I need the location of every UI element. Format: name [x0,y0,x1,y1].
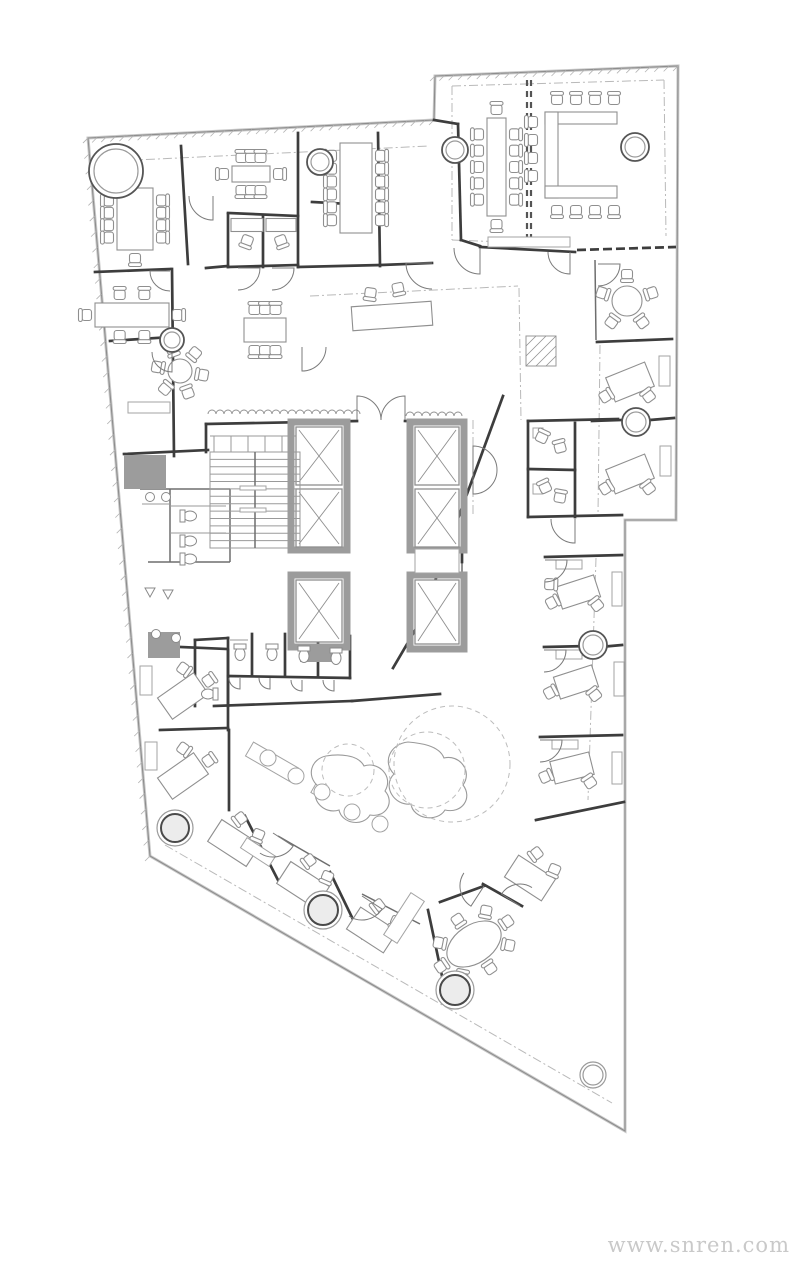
chair-seat [274,169,284,180]
column-inner [311,153,329,171]
desk [536,752,600,801]
wall [597,339,672,342]
door-swing [381,396,405,420]
chair-back [608,215,621,219]
chair-back [324,188,328,201]
desk [266,219,296,251]
column-inner [625,137,645,157]
chair-seat [130,254,141,264]
chair-seat [376,215,386,226]
chair-seat [255,153,266,163]
chair [230,810,248,828]
wall [124,450,208,454]
chair-back [519,193,523,206]
wall [298,265,380,267]
chair [324,188,337,201]
floor-plan-drawing [0,0,800,1261]
wall [180,647,227,649]
chair-seat [474,145,484,156]
chair [179,383,196,400]
chair-back [324,201,328,214]
wall [480,247,575,252]
column [89,144,143,198]
side-table [614,662,624,696]
door-swing [357,396,381,420]
chair-seat [510,178,520,189]
wall [352,694,440,701]
wall [540,735,622,737]
chair [553,488,568,503]
chair [113,331,126,344]
chair-back [138,340,151,344]
chair [589,206,602,219]
chair-seat [82,310,92,321]
toilet-fixture [298,646,310,663]
chair [101,219,114,232]
lounge-stool [372,816,388,832]
table-top [612,286,642,316]
side-table [488,237,570,247]
side-table [660,446,671,476]
chair [376,162,389,175]
chair-back [589,92,602,96]
wall-poche [124,455,166,489]
column-inner [164,332,180,348]
elevator-shaft [415,427,459,485]
wall [545,555,622,557]
door-swing [291,680,302,691]
chair [471,128,484,141]
table-top [95,303,169,327]
stair-rail [240,508,266,512]
chair-seat [510,129,520,140]
chair [185,345,203,363]
chair-back [385,201,389,214]
toilet-tank [180,553,185,565]
chair-back [385,175,389,188]
elevator-shaft [296,489,342,547]
chair [324,175,337,188]
chair-back [519,144,523,157]
chair-seat [474,194,484,205]
side-table [556,650,582,659]
chair-back [471,144,475,157]
chair [254,186,267,199]
chair [525,116,538,129]
chair [157,194,170,207]
lounge-circle-6 [151,342,209,400]
chair [101,231,114,244]
column-inner [626,412,646,432]
wall [214,701,352,706]
chair-back [525,134,529,147]
chair [551,206,564,219]
column-inner [94,149,138,193]
chair [643,285,659,301]
column-inner [583,1065,603,1085]
door-swing [272,268,294,290]
urinal [145,588,155,597]
chair-seat [139,290,150,300]
chair [490,102,503,115]
chair [570,92,583,105]
long-table-12 [471,102,523,233]
desk [148,730,221,799]
chair [621,270,634,283]
desk [504,840,567,902]
chair-seat [270,305,281,315]
door-swing [189,196,213,220]
door-swing [323,680,334,691]
chair-back [216,168,220,181]
chair-back [519,161,523,174]
stair-rail [240,486,266,490]
toilet-tank [266,644,278,649]
chair-back [621,279,634,283]
wall [595,260,596,340]
meeting-table-8 [216,150,287,199]
chair-back [324,175,328,188]
lounge-stool [344,804,360,820]
chair [500,937,515,952]
staircase [210,452,300,548]
chair [376,175,389,188]
desk [540,664,605,717]
chair-seat [157,220,167,231]
chair-seat [327,176,337,187]
round-table-5 [595,270,659,331]
chair-back [385,162,389,175]
edge-hatch-tick [145,856,150,861]
chair [510,161,523,174]
floor-plan-page: www.snren.com [0,0,800,1261]
column-body [308,895,338,925]
chair-seat [552,206,563,216]
desk [231,219,263,251]
sink [152,630,161,639]
column [580,1062,606,1088]
chair-back [166,194,170,207]
side-table [128,402,170,413]
bench [384,893,425,944]
zone-dashline [452,80,664,86]
toilet-fixture [180,535,197,547]
chair-seat [510,162,520,173]
desk-top [351,301,432,331]
chair [376,149,389,162]
door-swing [551,519,575,543]
chair [324,214,337,227]
wall [181,146,188,264]
column-inner [583,635,603,655]
door-swing [302,347,326,371]
chair-seat [104,220,114,231]
chair [595,285,611,301]
toilet-tank [180,535,185,547]
hatch-line [526,336,536,346]
chair-back [166,219,170,232]
hatched-shaft [526,336,556,366]
chair-seat [376,176,386,187]
chair [633,312,651,330]
toilet-fixture [180,553,197,565]
chair-back [385,149,389,162]
chair [471,177,484,190]
chair-back [269,355,282,359]
chair-seat [249,305,260,315]
door-swing [598,264,620,286]
wall-dashed [577,247,676,250]
chair [570,206,583,219]
sink [162,493,171,502]
column [442,137,468,163]
chair-back [471,128,475,141]
chair [157,231,170,244]
column [579,631,607,659]
chair-seat [474,129,484,140]
urinal [163,590,173,599]
chair-seat [114,290,125,300]
chair [113,287,126,300]
chair-back [519,177,523,190]
chair-back [254,195,267,199]
door-swing [406,263,432,289]
chair [471,193,484,206]
toilet-fixture [266,644,278,661]
toilet-fixture [180,510,197,522]
chair-seat [376,150,386,161]
desk-top [231,219,263,232]
chair [376,188,389,201]
desk [538,562,607,626]
side-table [552,740,578,749]
door-swing [548,252,570,274]
wall [650,418,674,420]
desk-top [504,855,555,901]
chair-seat [552,95,563,105]
chair [525,134,538,147]
chair [138,331,151,344]
chair-seat [528,117,538,128]
chair [157,219,170,232]
wall [228,676,350,678]
chair [589,92,602,105]
chair-back [324,214,328,227]
desk-top [158,753,209,800]
hatch-line [546,356,556,366]
chair-back [551,92,564,96]
wall [528,469,575,470]
desk [593,454,659,512]
toilet-fixture [202,688,219,700]
chair [376,201,389,214]
chair-back [490,102,503,106]
chair-seat [510,145,520,156]
chair-seat [609,206,620,216]
chair [552,438,568,454]
chair-back [525,170,529,183]
door-swing [229,678,240,689]
curtain-line [406,412,462,416]
chair-seat [327,189,337,200]
chair-back [570,92,583,96]
lounge-stool [260,750,276,766]
chair [194,367,209,382]
chair-seat [260,346,271,356]
chair-seat [114,331,125,341]
chair-back [551,215,564,219]
chair [269,346,282,359]
table-top [340,143,372,233]
desk [148,650,221,719]
chair-seat [376,163,386,174]
curtain-line [208,410,360,414]
chair-back [166,231,170,244]
door-swing [473,470,497,494]
desk-top [266,219,296,232]
chair-back [385,214,389,227]
elevator-shaft [296,580,342,642]
elevator-shaft [296,427,342,485]
chair [490,220,503,233]
chair [526,845,544,863]
toilet-tank [180,510,185,522]
chair-seat [157,232,167,243]
chair-back [182,309,186,322]
chair [525,170,538,183]
chair [510,144,523,157]
chair-seat [327,215,337,226]
chair-back [113,287,126,291]
toilet-tank [330,648,342,653]
chair [391,282,406,297]
column [622,408,650,436]
small-meeting-table-6 [244,302,286,359]
chair [510,128,523,141]
watermark: www.snren.com [608,1233,790,1257]
chair-seat [173,310,183,321]
chair-seat [590,95,601,105]
chair-back [490,229,503,233]
toilet-tank [213,688,218,700]
chair-seat [376,189,386,200]
door-swing [238,268,260,290]
chair [173,309,186,322]
chair [608,206,621,219]
chair-back [385,188,389,201]
chair [376,214,389,227]
chair [216,168,229,181]
column [304,891,342,929]
chair-seat [219,169,229,180]
chair [608,92,621,105]
wall [160,728,228,730]
chair-back [570,215,583,219]
lounge-blob-table [388,742,467,818]
chair [551,92,564,105]
wall [528,515,622,517]
column [436,971,474,1009]
chair [603,312,621,330]
chair [510,193,523,206]
chair [478,905,493,920]
column [160,328,184,352]
sink [172,634,181,643]
chair [274,168,287,181]
chair-back [101,206,105,219]
u-shaped-table [525,92,621,219]
toilet-tank [234,644,246,649]
elevator-shaft [415,580,459,644]
side-table [659,356,670,386]
table-top [487,118,506,216]
chair-seat [528,135,538,146]
service-room [415,549,459,573]
chair-seat [249,346,260,356]
chair [101,206,114,219]
chair-seat [590,206,601,216]
sink [146,493,155,502]
chair-seat [139,331,150,341]
lounge-stool [288,768,304,784]
chair [471,161,484,174]
chair-back [113,340,126,344]
chair-back [589,215,602,219]
column [307,149,333,175]
chair-back [129,263,142,267]
chair [525,152,538,165]
chair-back [166,206,170,219]
table-top [232,166,270,182]
side-table [145,742,157,770]
toilet-tank [298,646,310,651]
chair-back [283,168,287,181]
chair-seat [260,305,271,315]
chair [157,206,170,219]
chair-back [101,231,105,244]
elevator-shaft [415,489,459,547]
chair [138,287,151,300]
chair-seat [376,202,386,213]
chair-seat [270,346,281,356]
chair [510,177,523,190]
chair [432,935,447,950]
chair-back [608,92,621,96]
chair-back [525,152,529,165]
door-swing [454,248,480,274]
wall [434,120,458,124]
chair-back [254,150,267,154]
wall [440,886,484,902]
chair-seat [491,105,502,115]
chair-back [471,177,475,190]
wall [206,266,228,268]
chair [269,302,282,315]
column-inner [446,141,464,159]
chair [254,150,267,163]
chair [79,309,92,322]
chair-back [101,219,105,232]
chair-back [471,193,475,206]
chair-seat [528,171,538,182]
chair-seat [609,95,620,105]
column-body [161,814,189,842]
side-table [612,572,622,606]
chair [273,234,290,251]
reception-desk [350,280,433,331]
toilet-fixture [330,648,342,665]
chair-seat [571,206,582,216]
